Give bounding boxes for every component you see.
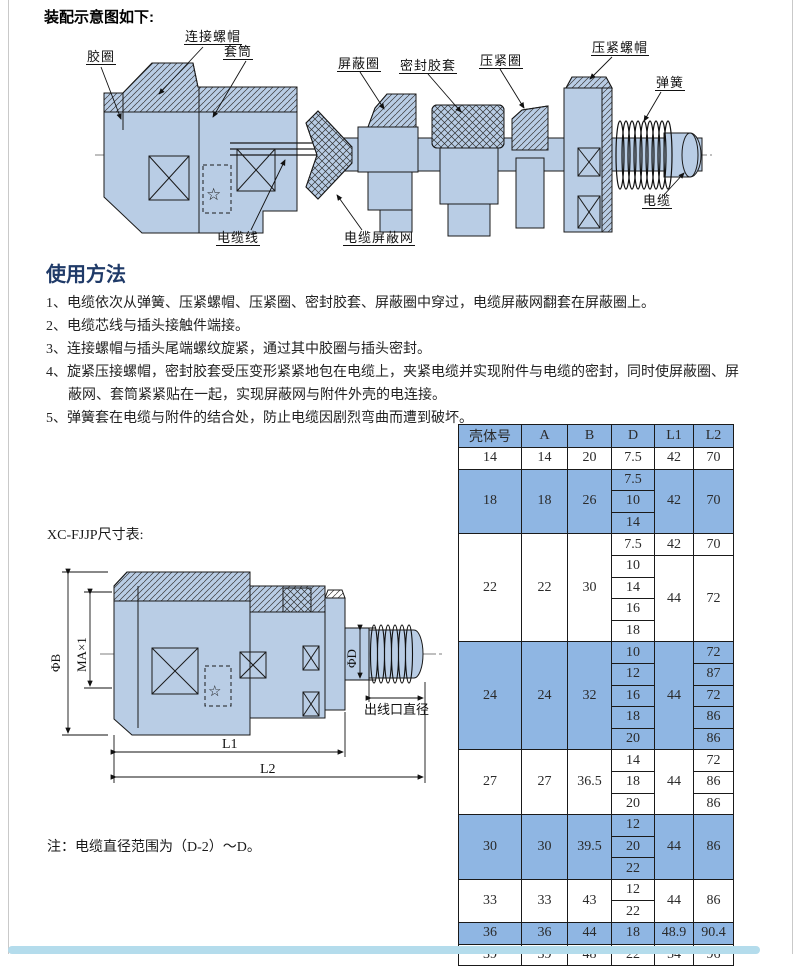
cell-l2: 70 [694, 469, 734, 534]
cell-d: 16 [612, 599, 655, 621]
cell-b: 43 [568, 879, 612, 922]
cell-l2: 72 [694, 642, 734, 664]
cell-a: 18 [522, 469, 568, 534]
cell-l2: 86 [694, 815, 734, 880]
cell-shell: 33 [459, 879, 522, 922]
cell-d: 12 [612, 663, 655, 685]
label-rubber-ring: 胶圈 [86, 49, 116, 65]
part-connector-body: ☆ [104, 63, 297, 233]
cell-d: 20 [612, 793, 655, 815]
cell-l1: 44 [655, 815, 694, 880]
cell-shell: 24 [459, 642, 522, 750]
cell-d: 12 [612, 879, 655, 901]
dim-thread: MA×1 [74, 637, 89, 672]
cell-d: 14 [612, 512, 655, 534]
label-cable: 电缆 [642, 193, 672, 209]
cell-l1: 42 [655, 469, 694, 534]
cell-d: 22 [612, 901, 655, 923]
cell-d: 20 [612, 728, 655, 750]
cell-d: 10 [612, 491, 655, 513]
table-row: 242432104472 [459, 642, 734, 664]
cell-b: 32 [568, 642, 612, 750]
table-row: 272736.5144472 [459, 750, 734, 772]
svg-text:☆: ☆ [208, 684, 221, 700]
label-cable-shield-mesh: 电缆屏蔽网 [343, 230, 415, 246]
cell-l2: 87 [694, 663, 734, 685]
cell-l2: 86 [694, 793, 734, 815]
col-header: 壳体号 [459, 425, 522, 448]
size-table-head: 壳体号ABDL1L2 [459, 425, 734, 448]
cell-l1: 42 [655, 448, 694, 470]
label-cable-wires: 电缆线 [216, 230, 260, 246]
size-table-body: 1414207.542701818267.5427010142222307.54… [459, 448, 734, 966]
cell-shell: 30 [459, 815, 522, 880]
table-row: 2222307.54270 [459, 534, 734, 556]
col-header: B [568, 425, 612, 448]
cell-b: 36.5 [568, 750, 612, 815]
cell-d: 18 [612, 771, 655, 793]
size-table-container: 壳体号ABDL1L2 1414207.542701818267.54270101… [458, 424, 734, 966]
col-header: L2 [694, 425, 734, 448]
cell-l1: 44 [655, 555, 694, 641]
part-shield-ring [358, 94, 418, 232]
label-sleeve: 套筒 [223, 44, 253, 60]
cell-d: 7.5 [612, 469, 655, 491]
table-row: 1818267.54270 [459, 469, 734, 491]
cell-d: 18 [612, 923, 655, 945]
usage-item: 2、电缆芯线与插头接触件端接。 [46, 315, 766, 338]
usage-item: 1、电缆依次从弹簧、压紧螺帽、压紧圈、密封胶套、屏蔽圈中穿过，电缆屏蔽网翻套在屏… [46, 292, 766, 315]
cell-shell: 27 [459, 750, 522, 815]
cell-d: 16 [612, 685, 655, 707]
cell-l2: 72 [694, 685, 734, 707]
cell-shell: 14 [459, 448, 522, 470]
table-row: 333343124486 [459, 879, 734, 901]
cell-d: 20 [612, 836, 655, 858]
cell-a: 24 [522, 642, 568, 750]
cell-l1: 48.9 [655, 923, 694, 945]
label-compression-nut: 压紧螺帽 [591, 40, 649, 56]
cell-l2: 86 [694, 879, 734, 922]
cell-d: 10 [612, 555, 655, 577]
table-row: 3636441848.990.4 [459, 923, 734, 945]
cell-d: 22 [612, 858, 655, 880]
cell-d: 7.5 [612, 534, 655, 556]
part-cable [664, 133, 701, 177]
usage-item: 3、连接螺帽与插头尾端螺纹旋紧，通过其中胶圈与插头密封。 [46, 338, 766, 361]
cell-d: 7.5 [612, 448, 655, 470]
col-header: L1 [655, 425, 694, 448]
cell-a: 33 [522, 879, 568, 922]
cell-l2: 90.4 [694, 923, 734, 945]
cell-d: 18 [612, 707, 655, 729]
cell-d: 10 [612, 642, 655, 664]
cell-a: 22 [522, 534, 568, 642]
size-table: 壳体号ABDL1L2 1414207.542701818267.54270101… [458, 424, 734, 966]
assembly-diagram: ☆ [0, 0, 800, 252]
dim-l2: L2 [260, 762, 276, 777]
cell-a: 27 [522, 750, 568, 815]
cell-l2: 72 [694, 750, 734, 772]
cell-b: 30 [568, 534, 612, 642]
cell-a: 36 [522, 923, 568, 945]
label-connecting-nut: 连接螺帽 [184, 29, 242, 45]
cell-l2: 70 [694, 534, 734, 556]
part-seal-sleeve [432, 105, 504, 236]
cell-d: 12 [612, 815, 655, 837]
label-shield-ring: 屏蔽圈 [337, 56, 381, 72]
label-seal-sleeve: 密封胶套 [399, 58, 457, 74]
cell-b: 20 [568, 448, 612, 470]
dimension-drawing: ☆ ΦB MA×1 ΦD 出线口直径 L1 L2 [0, 540, 460, 820]
part-compression-nut [564, 77, 612, 232]
cable-diameter-note: 注：电缆直径范围为（D-2）～D。 [47, 836, 261, 856]
cell-l1: 44 [655, 750, 694, 815]
cell-l2: 86 [694, 771, 734, 793]
cell-l2: 70 [694, 448, 734, 470]
cell-a: 14 [522, 448, 568, 470]
cell-a: 30 [522, 815, 568, 880]
cell-l1: 42 [655, 534, 694, 556]
cell-l1: 44 [655, 642, 694, 750]
svg-text:☆: ☆ [206, 185, 221, 204]
label-spring: 弹簧 [655, 75, 685, 91]
part-compression-ring [512, 106, 548, 228]
cell-d: 18 [612, 620, 655, 642]
cell-l1: 44 [655, 879, 694, 922]
label-compression-ring: 压紧圈 [479, 53, 523, 69]
cell-d: 14 [612, 577, 655, 599]
cell-b: 26 [568, 469, 612, 534]
cell-shell: 18 [459, 469, 522, 534]
cell-d: 14 [612, 750, 655, 772]
cell-l2: 72 [694, 555, 734, 641]
usage-item: 4、旋紧压接螺帽，密封胶套受压变形紧紧地包在电缆上，夹紧电缆并实现附件与电缆的密… [46, 361, 766, 384]
table-row: 1414207.54270 [459, 448, 734, 470]
cell-shell: 22 [459, 534, 522, 642]
table-row: 303039.5124486 [459, 815, 734, 837]
dim-l1: L1 [222, 737, 238, 752]
dim-phi-b: ΦB [48, 653, 63, 672]
cell-shell: 36 [459, 923, 522, 945]
usage-item-wrap: 蔽网、套筒紧紧贴在一起，实现屏蔽网与附件外壳的电连接。 [46, 384, 766, 407]
cell-b: 44 [568, 923, 612, 945]
usage-list: 1、电缆依次从弹簧、压紧螺帽、压紧圈、密封胶套、屏蔽圈中穿过，电缆屏蔽网翻套在屏… [46, 292, 766, 430]
dim-outlet: 出线口直径 [364, 702, 429, 717]
datasheet-page: { "page": { "title": "装配示意图如下:", "border… [0, 0, 800, 954]
cell-l2: 86 [694, 728, 734, 750]
cell-b: 39.5 [568, 815, 612, 880]
col-header: D [612, 425, 655, 448]
cell-l2: 86 [694, 707, 734, 729]
dim-phi-d: ΦD [344, 649, 359, 668]
horizontal-scrollbar[interactable] [8, 946, 760, 954]
col-header: A [522, 425, 568, 448]
usage-heading: 使用方法 [46, 258, 126, 287]
